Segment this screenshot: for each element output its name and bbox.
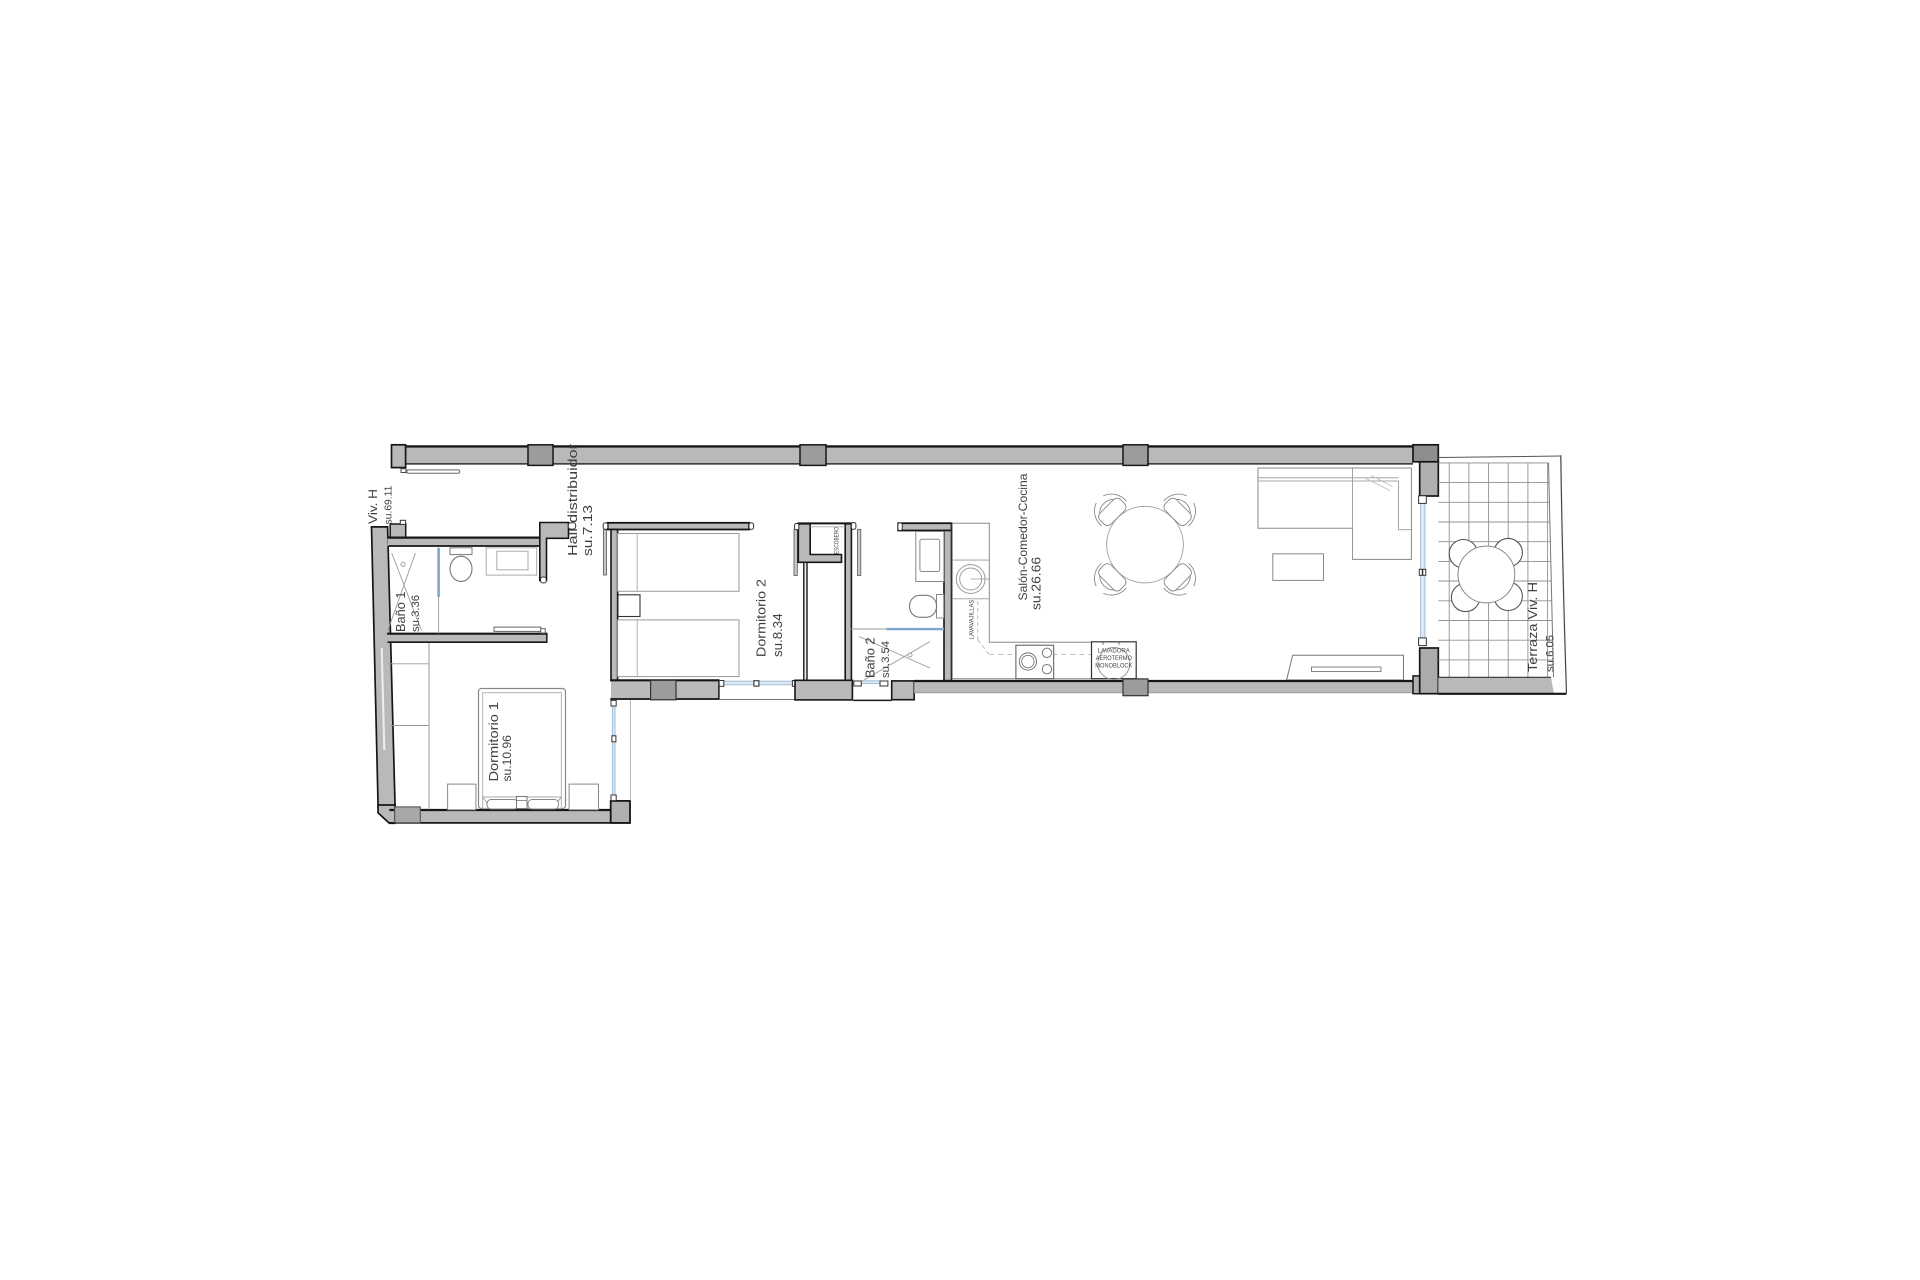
svg-text:su.10.96: su.10.96 [500,735,514,782]
svg-text:su.8.34: su.8.34 [770,613,785,657]
svg-text:Terraza Viv. H: Terraza Viv. H [1525,582,1540,672]
svg-text:Baño 2: Baño 2 [863,638,878,679]
svg-text:su.3.36: su.3.36 [410,595,422,632]
svg-text:LAVADORA: LAVADORA [1098,649,1130,655]
svg-text:Dormitorio 2: Dormitorio 2 [754,579,769,657]
svg-text:su.26.66: su.26.66 [1029,557,1044,610]
svg-text:su.69.11: su.69.11 [383,485,394,524]
svg-text:AEROTERMO: AEROTERMO [1096,656,1132,662]
svg-text:su.7.13: su.7.13 [580,505,595,556]
svg-text:Viv. H: Viv. H [368,489,380,524]
svg-text:MONOBLOCK: MONOBLOCK [1095,664,1132,670]
svg-text:Dormitorio 1: Dormitorio 1 [486,702,501,782]
svg-text:Baño 1: Baño 1 [393,592,408,633]
svg-text:su.6.05: su.6.05 [1545,635,1557,672]
svg-text:LAVAVAJILLAS: LAVAVAJILLAS [970,600,976,640]
svg-text:ESCOBERO: ESCOBERO [835,527,841,554]
svg-text:su.3.54: su.3.54 [880,641,892,678]
